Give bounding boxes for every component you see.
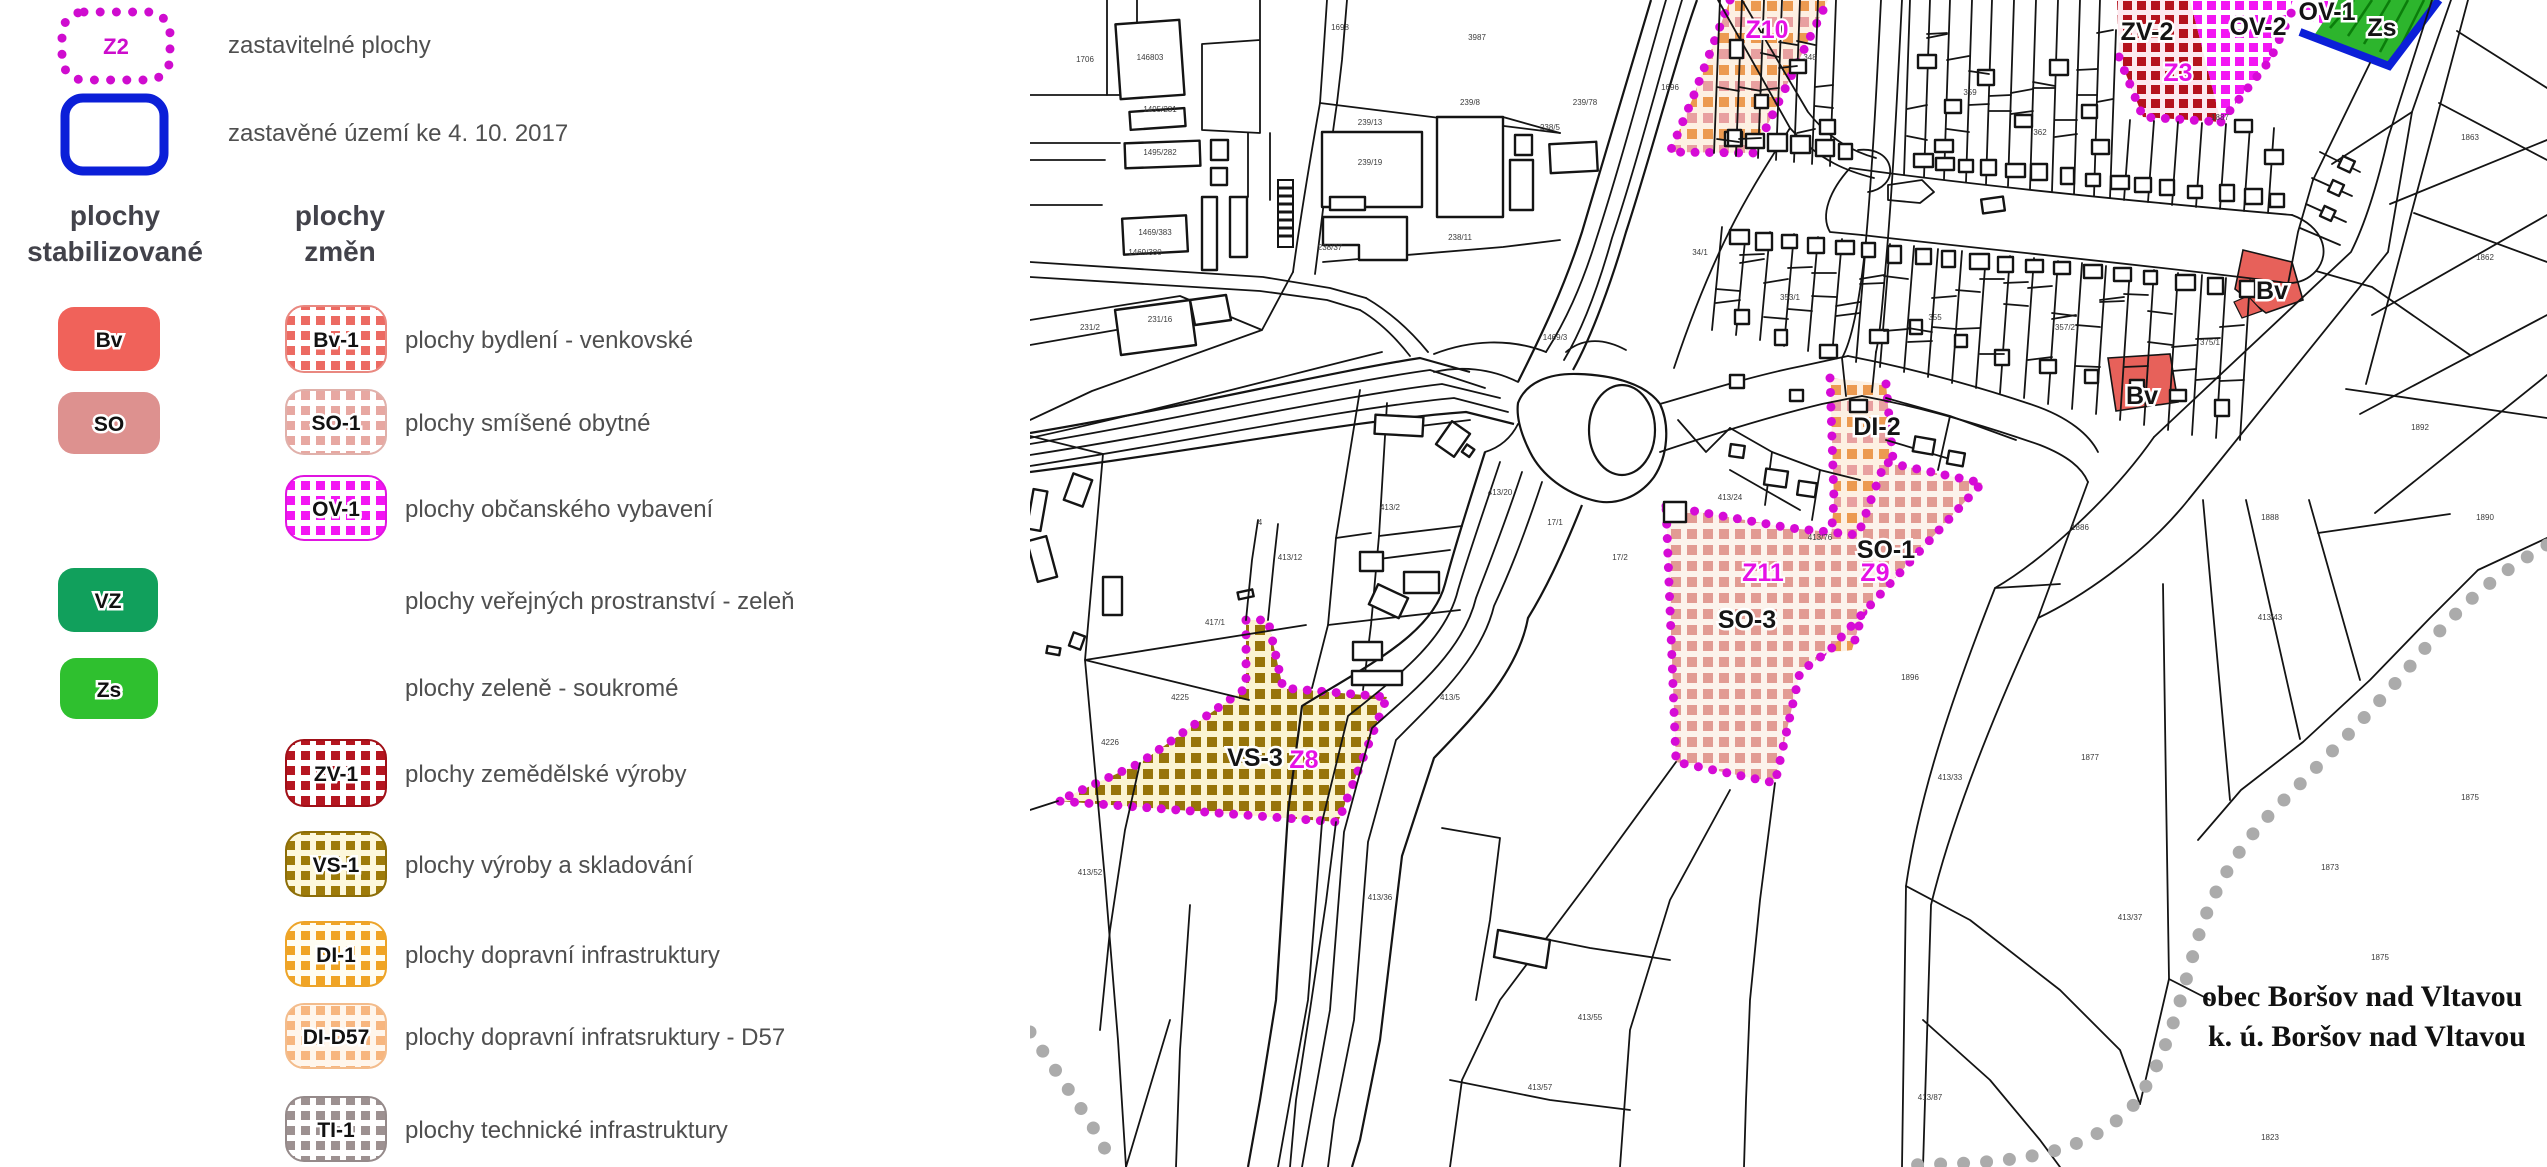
svg-text:1469/383: 1469/383 xyxy=(1138,228,1172,237)
svg-text:413/87: 413/87 xyxy=(1918,1093,1943,1102)
svg-text:1888: 1888 xyxy=(2261,513,2279,522)
svg-text:413/76: 413/76 xyxy=(1808,533,1833,542)
svg-text:1469/3: 1469/3 xyxy=(1543,333,1568,342)
svg-text:413/2: 413/2 xyxy=(1380,503,1401,512)
svg-text:k. ú. Boršov nad Vltavou: k. ú. Boršov nad Vltavou xyxy=(2208,1020,2526,1053)
svg-text:357/2: 357/2 xyxy=(2055,323,2076,332)
svg-text:Z3: Z3 xyxy=(2163,59,2192,87)
svg-text:4225: 4225 xyxy=(1171,693,1189,702)
svg-text:413/24: 413/24 xyxy=(1718,493,1743,502)
svg-text:Zs: Zs xyxy=(2367,14,2396,42)
svg-text:238/5: 238/5 xyxy=(1540,123,1561,132)
svg-text:34/1: 34/1 xyxy=(1692,248,1708,257)
svg-text:OV-1: OV-1 xyxy=(2299,0,2356,26)
svg-text:Z8: Z8 xyxy=(1289,746,1318,774)
svg-text:239/78: 239/78 xyxy=(1573,98,1598,107)
svg-text:DI-1: DI-1 xyxy=(316,944,356,967)
svg-text:238/11: 238/11 xyxy=(1448,233,1472,242)
svg-text:3987: 3987 xyxy=(1468,33,1486,42)
svg-text:1706: 1706 xyxy=(1076,55,1094,64)
svg-text:obec Boršov nad Vltavou: obec Boršov nad Vltavou xyxy=(2202,980,2522,1013)
svg-text:413/57: 413/57 xyxy=(1528,1083,1553,1092)
svg-text:Z9: Z9 xyxy=(1860,559,1889,587)
svg-text:TI-1: TI-1 xyxy=(317,1119,355,1142)
svg-text:413/20: 413/20 xyxy=(1488,488,1513,497)
svg-text:1886: 1886 xyxy=(2071,523,2089,532)
svg-text:Z10: Z10 xyxy=(1745,16,1788,44)
svg-text:1877: 1877 xyxy=(2081,753,2099,762)
svg-text:SO-3: SO-3 xyxy=(1718,606,1776,634)
svg-text:Bv: Bv xyxy=(2126,382,2158,410)
svg-text:1495/282: 1495/282 xyxy=(1143,148,1177,157)
svg-text:OV-1: OV-1 xyxy=(312,498,360,521)
svg-text:1495/281: 1495/281 xyxy=(1143,105,1177,114)
svg-text:ZV-2: ZV-2 xyxy=(2121,18,2174,46)
svg-text:238/37: 238/37 xyxy=(1318,243,1343,252)
svg-text:VS-1: VS-1 xyxy=(313,854,360,877)
svg-text:1873: 1873 xyxy=(2321,863,2339,872)
svg-text:17/2: 17/2 xyxy=(1612,553,1628,562)
svg-text:146803: 146803 xyxy=(1137,53,1164,62)
svg-text:239/8: 239/8 xyxy=(1460,98,1481,107)
svg-text:413/43: 413/43 xyxy=(2258,613,2283,622)
svg-text:413/37: 413/37 xyxy=(2118,913,2143,922)
svg-text:1875: 1875 xyxy=(2461,793,2479,802)
svg-text:1892: 1892 xyxy=(2411,423,2429,432)
svg-text:1823: 1823 xyxy=(2261,1133,2279,1142)
svg-text:1896: 1896 xyxy=(1901,673,1919,682)
svg-text:VS-3: VS-3 xyxy=(1227,744,1283,772)
svg-text:231/2: 231/2 xyxy=(1080,323,1101,332)
svg-text:1890: 1890 xyxy=(2476,513,2494,522)
svg-text:1875: 1875 xyxy=(2371,953,2389,962)
svg-text:413/36: 413/36 xyxy=(1368,893,1393,902)
svg-text:1862: 1862 xyxy=(2476,253,2494,262)
svg-text:Bv: Bv xyxy=(96,329,123,352)
svg-text:VZ: VZ xyxy=(95,590,122,613)
svg-text:ZV-1: ZV-1 xyxy=(314,763,359,786)
svg-text:362: 362 xyxy=(2033,128,2047,137)
svg-text:Bv-1: Bv-1 xyxy=(313,329,359,352)
svg-text:239/19: 239/19 xyxy=(1358,158,1383,167)
svg-text:413/12: 413/12 xyxy=(1278,553,1303,562)
svg-text:348: 348 xyxy=(1803,53,1817,62)
svg-text:239/13: 239/13 xyxy=(1358,118,1383,127)
svg-text:413/52: 413/52 xyxy=(1078,868,1103,877)
svg-text:DI-2: DI-2 xyxy=(1853,413,1900,441)
svg-text:417/1: 417/1 xyxy=(1205,618,1226,627)
svg-text:231/16: 231/16 xyxy=(1148,315,1173,324)
svg-text:DI-D57: DI-D57 xyxy=(303,1026,370,1049)
svg-text:Z11: Z11 xyxy=(1742,559,1784,587)
svg-text:1469/380: 1469/380 xyxy=(1128,248,1162,257)
svg-text:413/5: 413/5 xyxy=(1440,693,1461,702)
svg-text:413/33: 413/33 xyxy=(1938,773,1963,782)
svg-text:353/1: 353/1 xyxy=(1780,293,1801,302)
svg-text:OV-2: OV-2 xyxy=(2230,13,2287,41)
svg-text:413/55: 413/55 xyxy=(1578,1013,1603,1022)
svg-text:Zs: Zs xyxy=(97,679,122,702)
svg-text:Bv: Bv xyxy=(2256,277,2288,305)
svg-text:1863: 1863 xyxy=(2461,133,2479,142)
svg-text:1696: 1696 xyxy=(1661,83,1679,92)
svg-text:359: 359 xyxy=(1963,88,1977,97)
svg-text:1698: 1698 xyxy=(1331,23,1349,32)
svg-text:1887: 1887 xyxy=(2211,113,2229,122)
svg-text:355: 355 xyxy=(1928,313,1942,322)
svg-text:4226: 4226 xyxy=(1101,738,1119,747)
svg-text:SO: SO xyxy=(94,413,124,436)
svg-text:SO-1: SO-1 xyxy=(311,412,360,435)
